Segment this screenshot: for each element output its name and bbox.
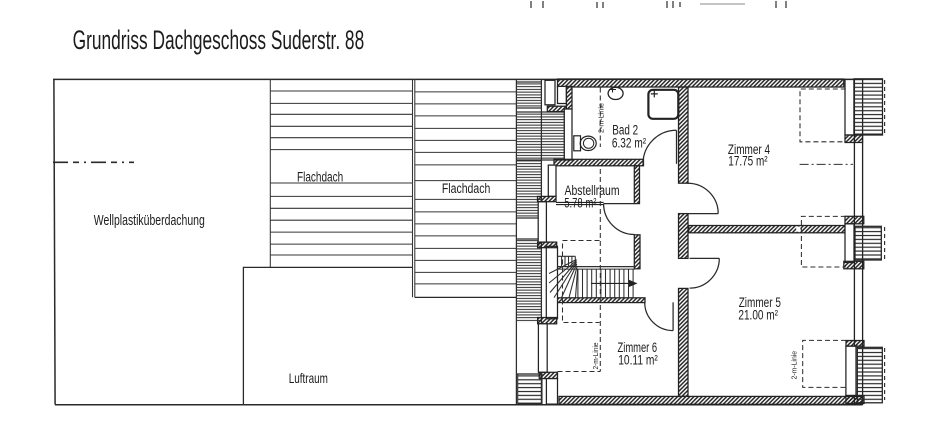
svg-text:Grundriss Dachgeschoss Suderst: Grundriss Dachgeschoss Suderstr. 88 xyxy=(73,25,365,55)
svg-text:6.32 m²: 6.32 m² xyxy=(612,135,647,150)
svg-text:2-m-Linie: 2-m-Linie xyxy=(790,351,799,380)
svg-text:17.75 m²: 17.75 m² xyxy=(728,154,768,169)
svg-text:5.78 m²: 5.78 m² xyxy=(564,195,597,210)
svg-text:Flachdach: Flachdach xyxy=(297,170,343,185)
svg-text:21.00 m²: 21.00 m² xyxy=(738,307,778,322)
svg-text:Flachdach: Flachdach xyxy=(442,181,490,196)
svg-text:2-m-Linie: 2-m-Linie xyxy=(597,103,606,133)
svg-text:2-m-Linie: 2-m-Linie xyxy=(591,343,600,370)
svg-text:10.11 m²: 10.11 m² xyxy=(618,352,658,367)
svg-text:Wellplastiküberdachung: Wellplastiküberdachung xyxy=(94,213,205,229)
svg-text:Luftraum: Luftraum xyxy=(289,370,328,386)
